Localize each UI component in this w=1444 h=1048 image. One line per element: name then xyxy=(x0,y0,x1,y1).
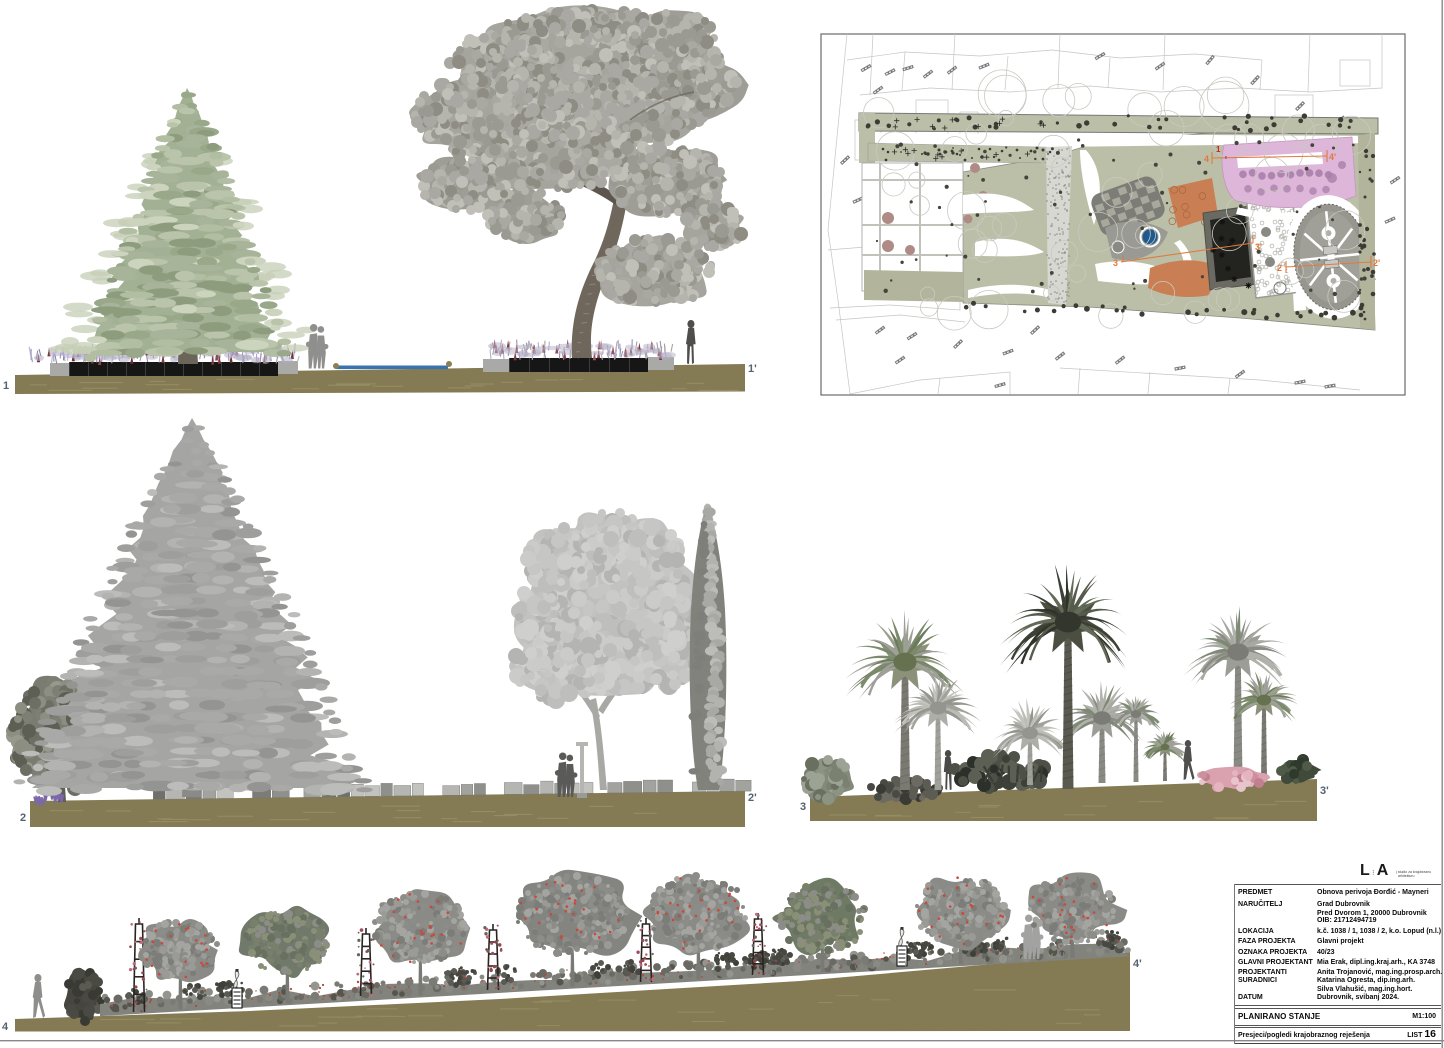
svg-text:4: 4 xyxy=(1204,154,1209,164)
svg-text:1': 1' xyxy=(748,363,757,375)
svg-text:1: 1 xyxy=(1216,145,1221,154)
svg-text:2': 2' xyxy=(748,792,757,804)
svg-text:4': 4' xyxy=(1329,152,1336,162)
svg-text:4': 4' xyxy=(1133,958,1142,970)
svg-text:4: 4 xyxy=(2,1021,9,1033)
svg-text:3: 3 xyxy=(1113,258,1118,268)
svg-text:3: 3 xyxy=(800,801,806,813)
svg-text:2: 2 xyxy=(20,812,26,824)
svg-text:2: 2 xyxy=(1277,263,1282,273)
svg-text:1: 1 xyxy=(3,380,9,392)
svg-text:2': 2' xyxy=(1373,258,1380,268)
svg-text:3': 3' xyxy=(1255,242,1262,252)
svg-text:3': 3' xyxy=(1320,785,1329,797)
